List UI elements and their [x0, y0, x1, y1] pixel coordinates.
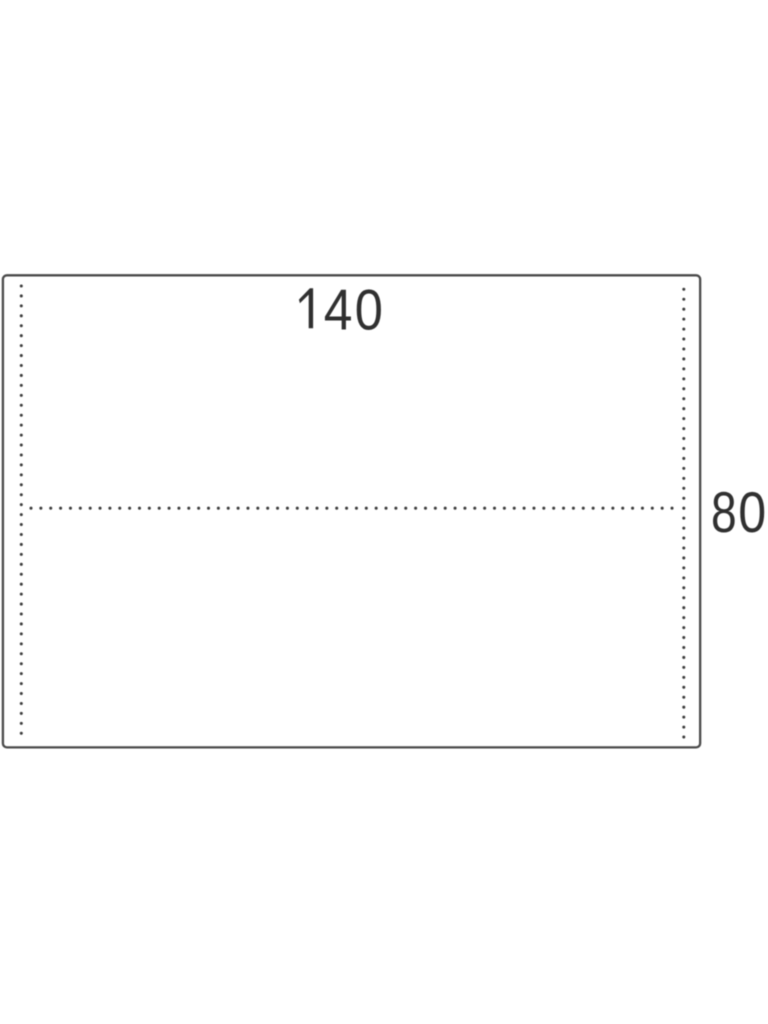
svg-text:4: 4	[324, 278, 353, 342]
svg-text:8: 8	[711, 481, 737, 545]
svg-text:0: 0	[355, 278, 383, 342]
svg-text:0: 0	[738, 481, 766, 545]
